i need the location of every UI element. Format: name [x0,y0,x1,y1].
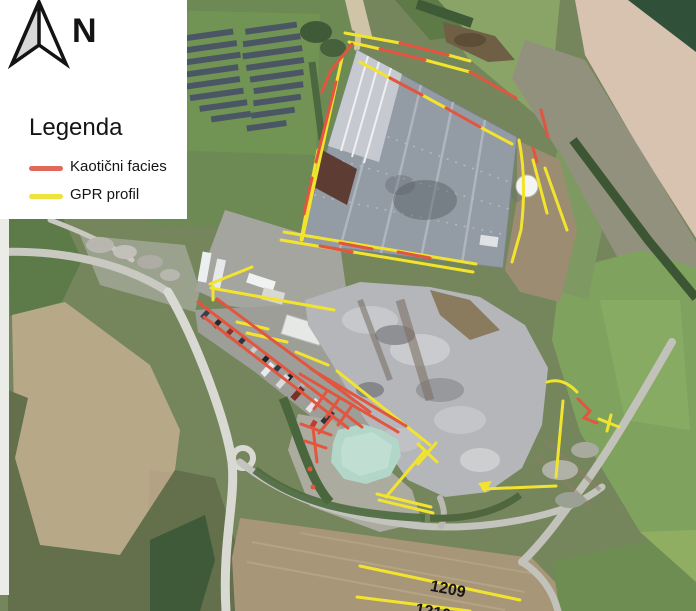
north-arrow-shade [12,2,39,64]
gpr-swatch-line [29,194,63,199]
legend-title: Legenda [29,114,122,142]
dome [516,175,538,197]
legend-panel: N Legenda Kaotični facies GPR profil [0,0,187,219]
north-arrow: N [6,0,136,72]
legend-item-label: GPR profil [70,186,139,203]
legend-item-label: Kaotični facies [70,158,167,175]
facies-swatch-line [29,166,63,171]
north-label: N [72,12,97,50]
map-figure: 1209 1210 N Legenda Kaotični facies GPR … [0,0,696,611]
photo-left-margin [0,213,9,595]
